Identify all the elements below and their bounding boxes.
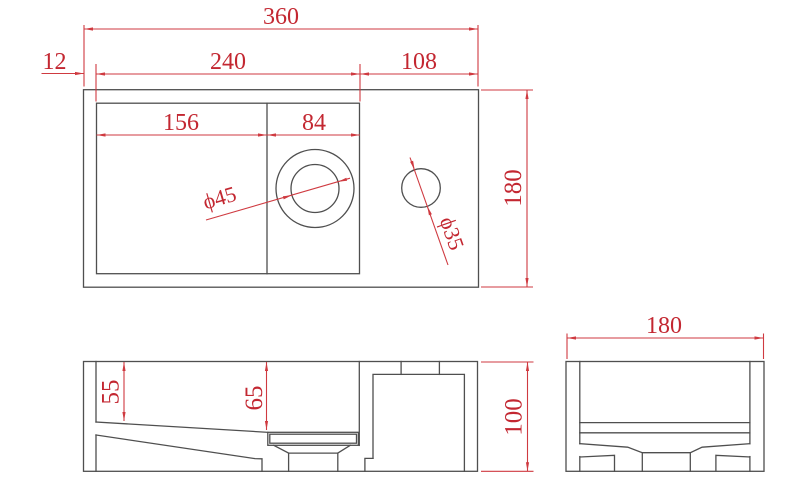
svg-text:180: 180 [646,313,682,339]
svg-text:84: 84 [302,110,326,136]
svg-text:12: 12 [43,49,67,75]
svg-text:360: 360 [263,4,299,30]
svg-text:65: 65 [241,386,268,411]
svg-text:180: 180 [500,169,527,207]
svg-text:108: 108 [401,49,437,75]
svg-text:55: 55 [98,380,125,405]
svg-text:100: 100 [501,398,528,436]
svg-text:240: 240 [210,49,246,75]
svg-text:156: 156 [163,110,199,136]
